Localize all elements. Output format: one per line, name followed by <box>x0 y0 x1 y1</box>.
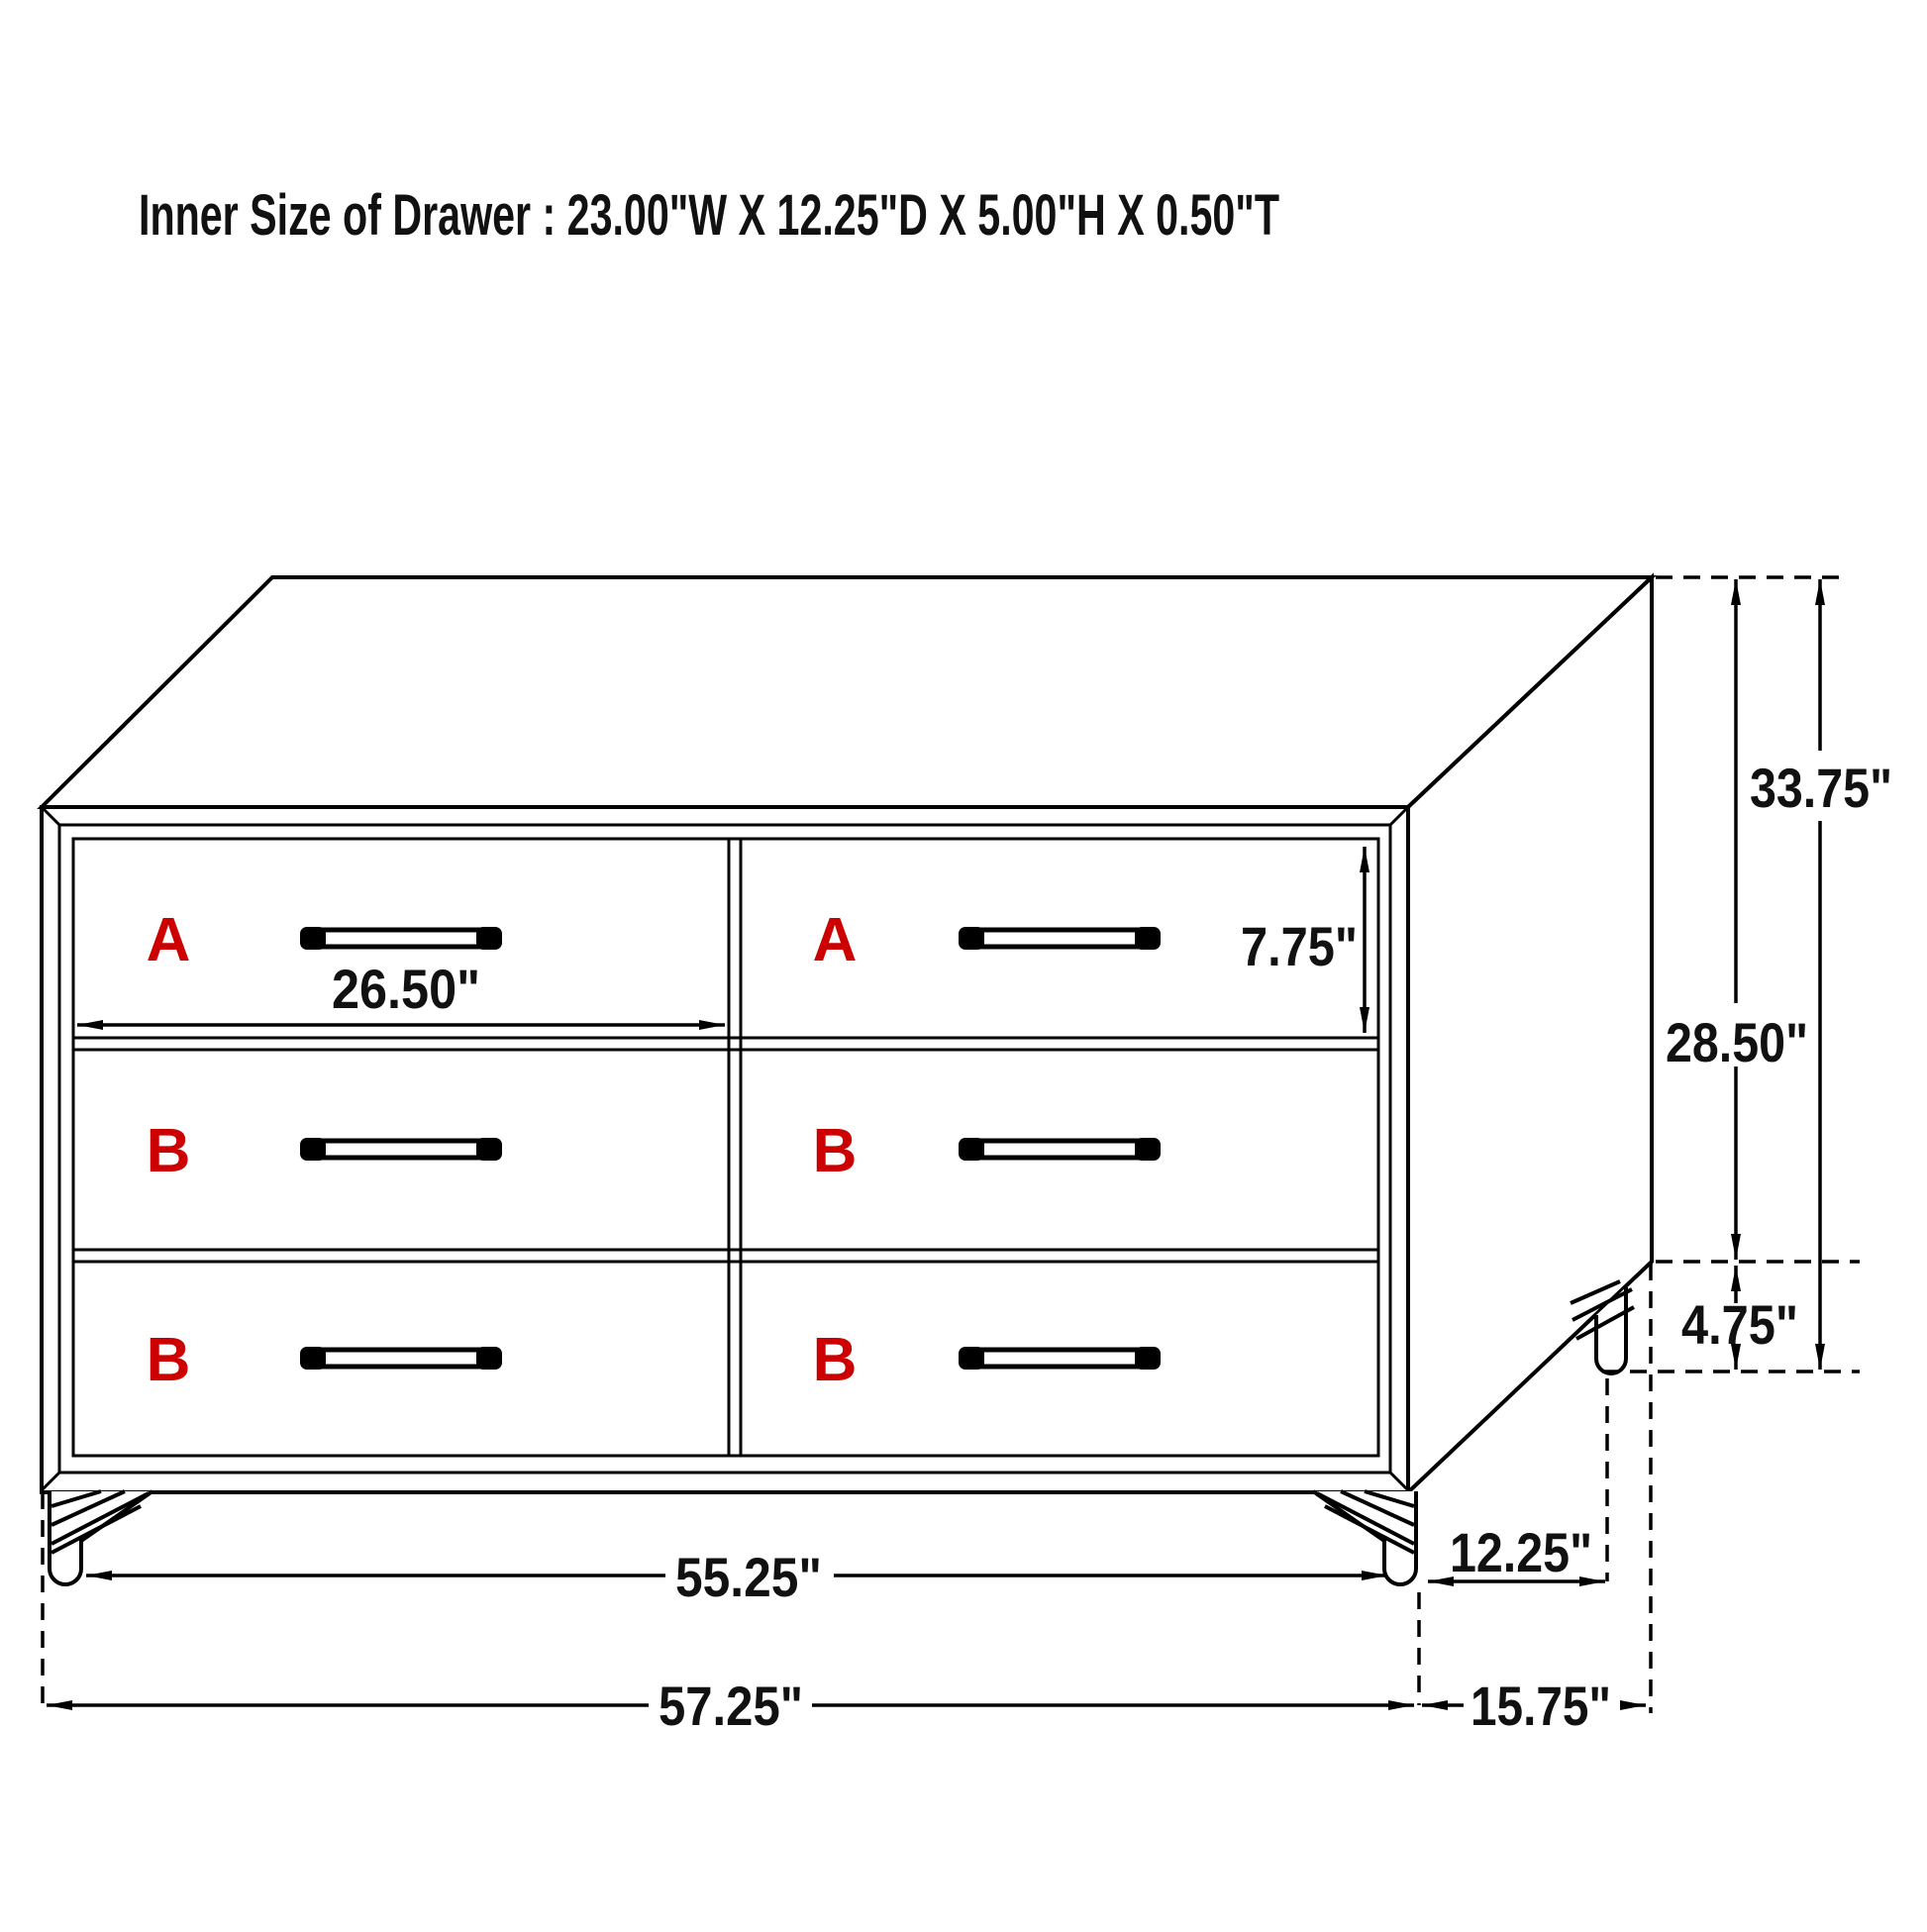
cabinet-front-face <box>42 807 1408 1492</box>
dim-label-leg-height: 4.75" <box>1681 1293 1798 1356</box>
dresser-dimension-diagram-page: Inner Size of Drawer : 23.00"W X 12.25"D… <box>0 0 1927 1927</box>
front-right-leg <box>1313 1491 1416 1584</box>
handle-r2c1 <box>300 1138 502 1161</box>
handle-r1c2 <box>959 927 1161 950</box>
drawer-label-a1: A <box>147 906 191 974</box>
dim-label-overall-depth: 15.75" <box>1471 1675 1611 1737</box>
dim-label-side-leg-span: 12.25" <box>1450 1521 1592 1583</box>
dim-label-body-height: 28.50" <box>1666 1011 1808 1073</box>
dim-label-drawer-width: 26.50" <box>332 958 480 1020</box>
page-title: Inner Size of Drawer : 23.00"W X 12.25"D… <box>139 183 1279 248</box>
dim-label-overall-height: 33.75" <box>1750 757 1892 819</box>
handle-r3c2 <box>959 1347 1161 1370</box>
dim-label-overall-width: 57.25" <box>659 1675 803 1737</box>
dim-label-front-leg-span: 55.25" <box>675 1546 822 1608</box>
dim-label-drawer-height: 7.75" <box>1241 915 1358 977</box>
handle-r3c1 <box>300 1347 502 1370</box>
drawer-label-b2: B <box>813 1117 858 1185</box>
handle-r2c2 <box>959 1138 1161 1161</box>
dresser-dimension-diagram: Inner Size of Drawer : 23.00"W X 12.25"D… <box>0 0 1927 1927</box>
drawer-label-a2: A <box>813 906 858 974</box>
drawer-label-b4: B <box>813 1326 858 1394</box>
drawer-label-b1: B <box>147 1117 191 1185</box>
drawer-label-b3: B <box>147 1326 191 1394</box>
cabinet-top-face <box>42 577 1652 807</box>
front-left-leg <box>50 1491 152 1584</box>
handle-r1c1 <box>300 927 502 950</box>
